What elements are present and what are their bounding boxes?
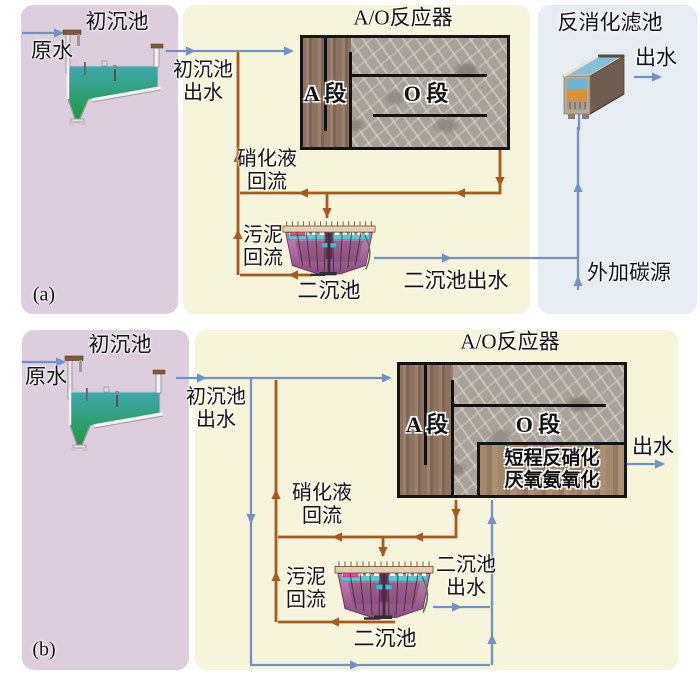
sludge-return-label-b: 污泥回流 — [286, 566, 326, 612]
nitrified-return-label-a: 硝化液回流 — [237, 148, 297, 194]
panel-tag-b: (b) — [32, 639, 55, 662]
clarifier-effluent-label-b: 二沉池出水 — [436, 554, 496, 600]
filter-illustration — [557, 46, 639, 130]
anammox-box: 短程反硝化 厌氧氨氧化 — [477, 442, 627, 498]
baffle — [373, 114, 487, 117]
anammox-label-line2: 厌氧氨氧化 — [504, 470, 599, 492]
carbon-source-label: 外加碳源 — [587, 262, 671, 285]
primary-effluent-label-b: 初沉池出水 — [186, 386, 246, 432]
primary-tank-illustration-a — [58, 26, 170, 128]
primary-tank-illustration-b — [60, 352, 172, 454]
panel-tag-a: (a) — [33, 284, 55, 307]
clarifier-label-a: 二沉池 — [298, 280, 361, 303]
baffle — [451, 380, 454, 495]
section-o-label-b: O 段 — [516, 407, 561, 439]
nitrified-return-label-b: 硝化液回流 — [292, 482, 352, 528]
reactor-title-b: A/O反应器 — [460, 331, 559, 354]
effluent-label-b: 出水 — [632, 436, 674, 459]
clarifier-effluent-label-a: 二沉池出水 — [404, 270, 509, 293]
clarifier-label-b: 二沉池 — [354, 628, 417, 651]
reactor-title-a: A/O反应器 — [353, 7, 452, 30]
raw-water-label-b: 原水 — [25, 366, 67, 389]
filter-title: 反消化滤池 — [558, 12, 663, 35]
baffle — [349, 52, 352, 147]
section-a-label-a: A 段 — [304, 76, 346, 108]
primary-tank-title-a: 初沉池 — [86, 11, 149, 34]
clarifier-illustration-b — [334, 560, 434, 623]
anammox-label-line1: 短程反硝化 — [504, 448, 599, 470]
clarifier-illustration-a — [282, 220, 376, 279]
raw-water-label-a: 原水 — [31, 40, 73, 63]
filter-effluent-label: 出水 — [635, 47, 677, 70]
primary-tank-title-b: 初沉池 — [89, 334, 152, 357]
sludge-return-label-a: 污泥回流 — [243, 224, 283, 270]
section-o-label-a: O 段 — [404, 76, 449, 108]
primary-effluent-label-a: 初沉池出水 — [173, 59, 233, 105]
process-flow-diagram: 短程反硝化 厌氧氨氧化 — [0, 0, 700, 682]
section-a-label-b: A 段 — [406, 407, 448, 439]
